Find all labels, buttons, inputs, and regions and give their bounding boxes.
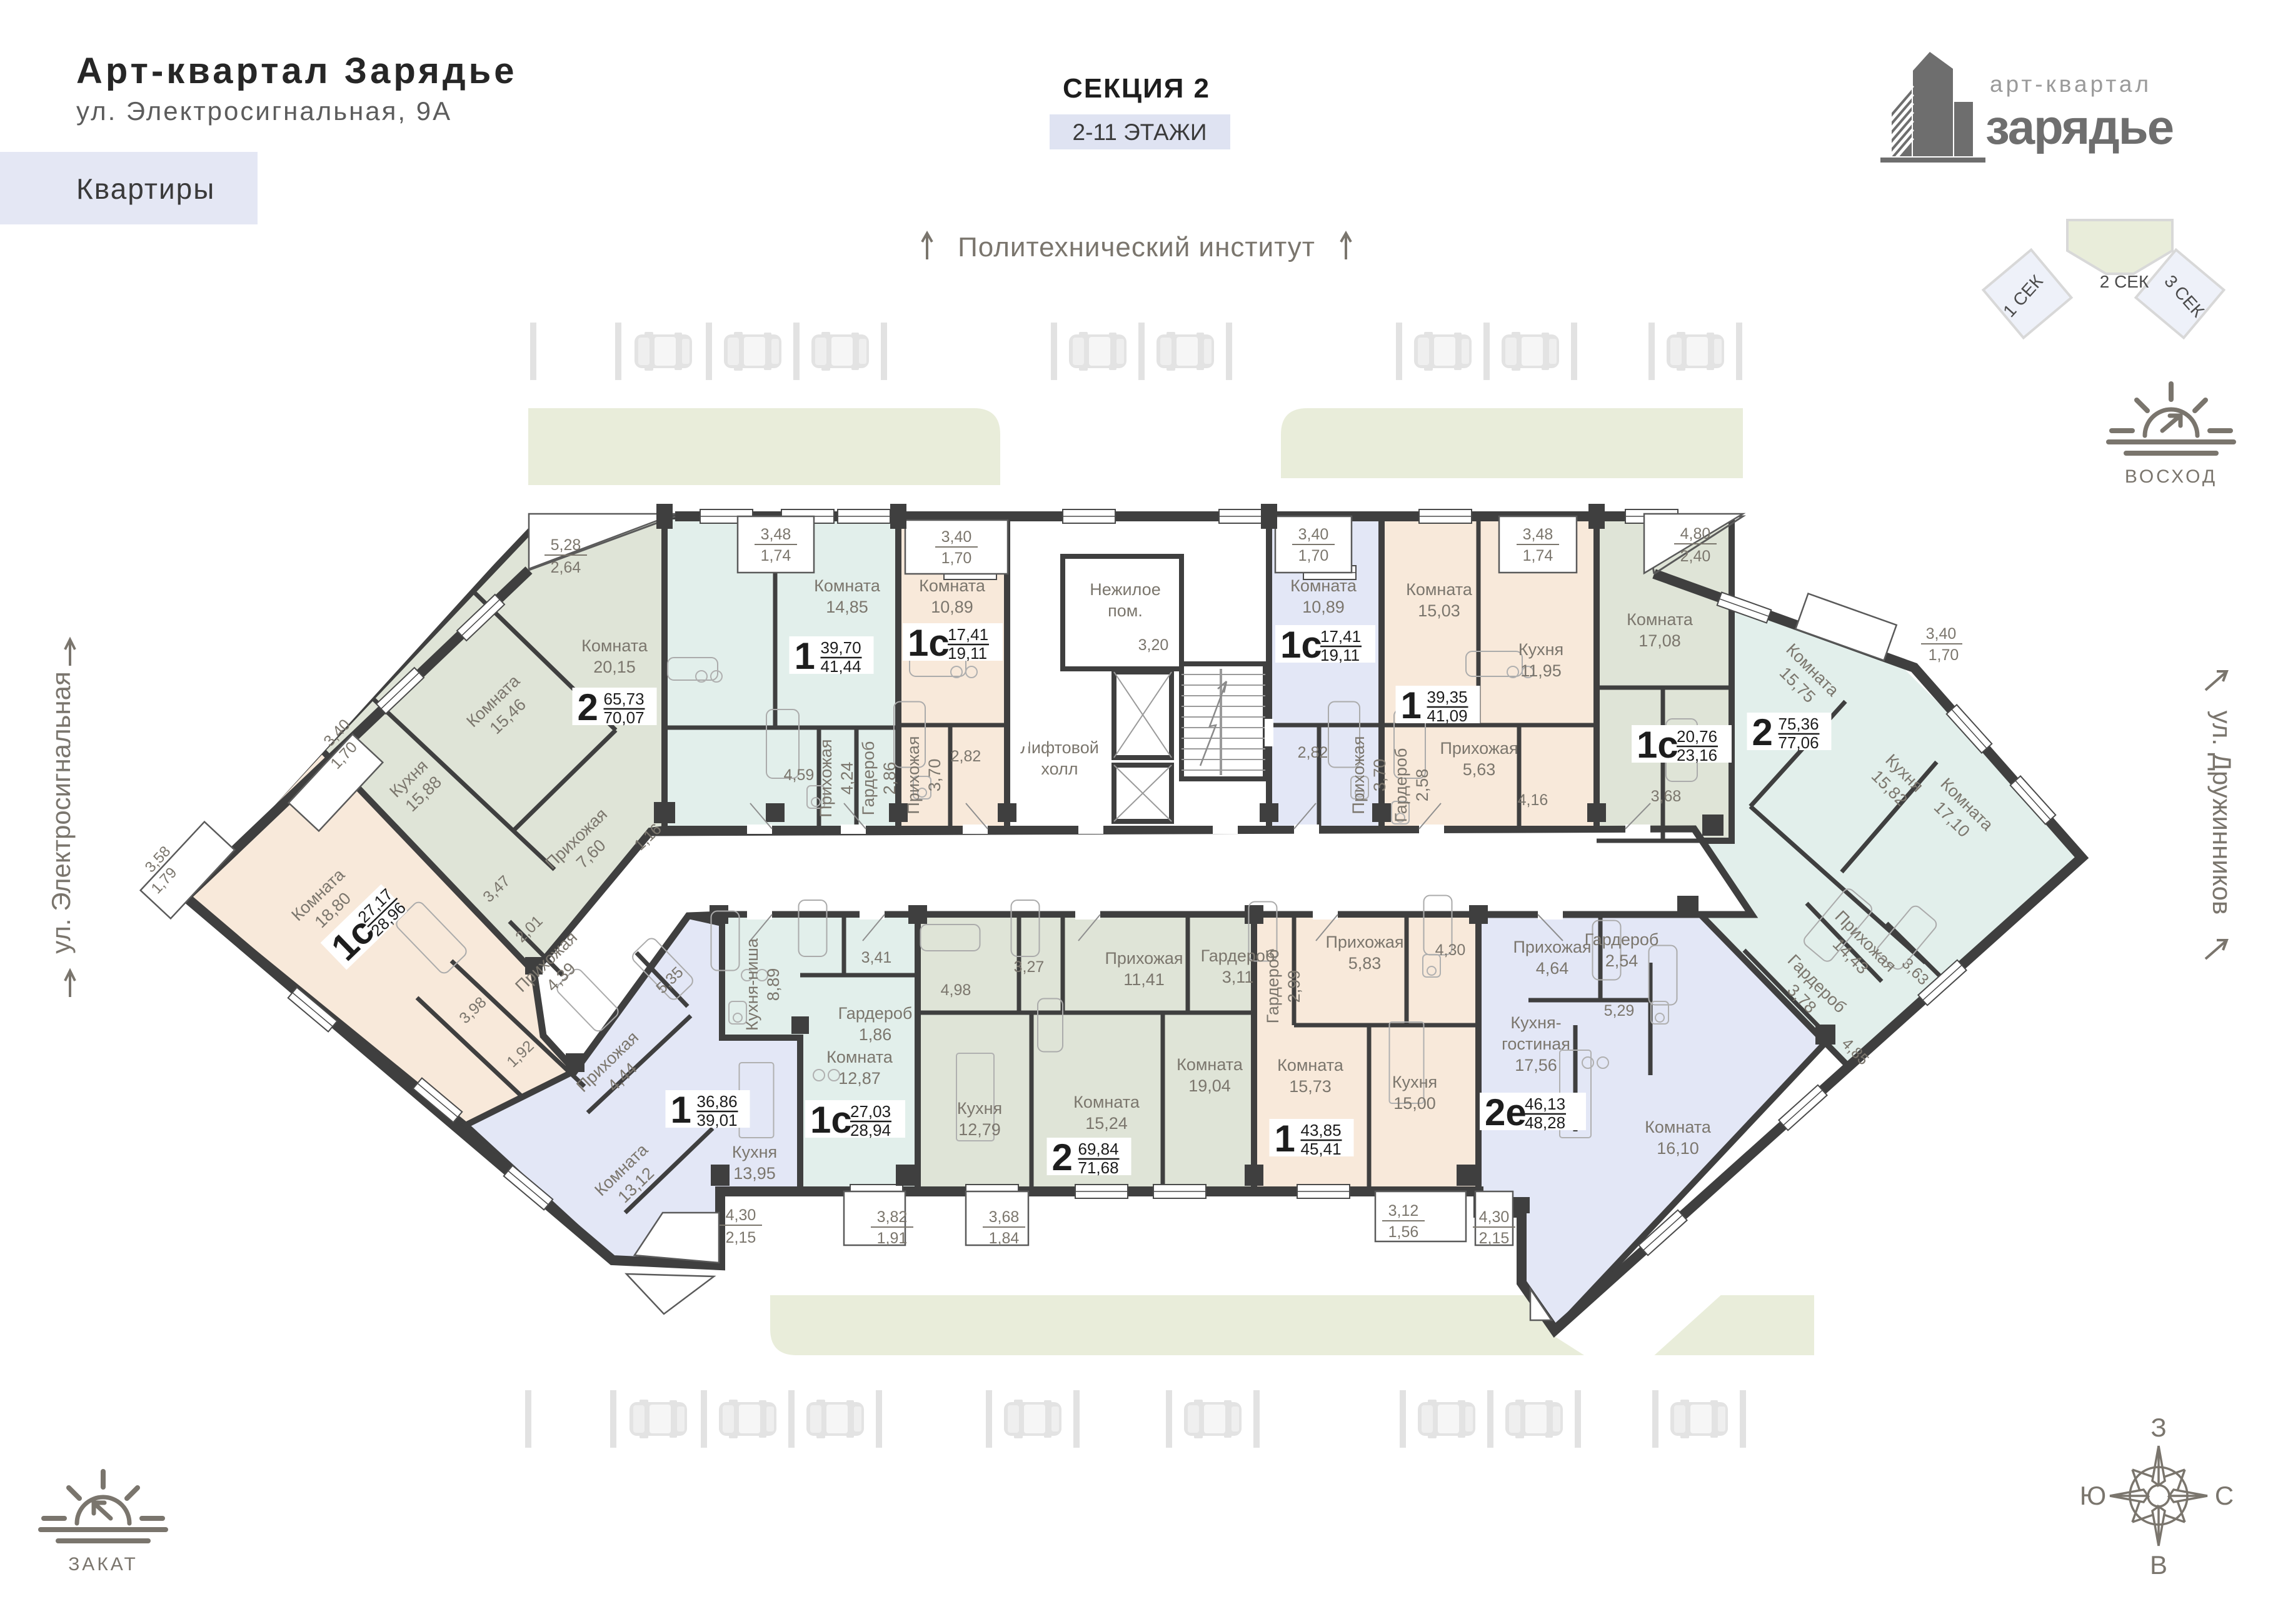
svg-text:1: 1 (671, 1089, 691, 1131)
svg-text:3,40: 3,40 (1926, 625, 1957, 643)
svg-text:5,29: 5,29 (1604, 1002, 1635, 1020)
svg-text:гостиная: гостиная (1502, 1035, 1570, 1053)
svg-text:Комната: Комната (1290, 576, 1357, 595)
svg-text:71,68: 71,68 (1078, 1158, 1119, 1177)
svg-text:зарядье: зарядье (1985, 99, 2173, 154)
svg-text:1с: 1с (1637, 724, 1678, 766)
svg-text:4,64: 4,64 (1536, 959, 1569, 978)
svg-text:3,82: 3,82 (877, 1208, 908, 1226)
svg-text:Комната: Комната (1645, 1118, 1712, 1136)
svg-text:1,74: 1,74 (1523, 547, 1553, 564)
svg-text:43,85: 43,85 (1301, 1121, 1342, 1140)
svg-text:3,48: 3,48 (1523, 526, 1553, 543)
svg-text:2,15: 2,15 (726, 1229, 756, 1246)
svg-text:Кухня: Кухня (957, 1099, 1002, 1118)
svg-text:3,68: 3,68 (1651, 788, 1682, 805)
svg-text:1: 1 (1275, 1118, 1295, 1160)
svg-text:14,85: 14,85 (826, 598, 868, 616)
svg-text:Прихожая: Прихожая (1440, 739, 1518, 758)
svg-text:3,70: 3,70 (1370, 759, 1389, 792)
svg-text:4,98: 4,98 (941, 981, 971, 999)
svg-text:15,73: 15,73 (1289, 1077, 1332, 1096)
svg-text:Прихожая: Прихожая (1105, 949, 1183, 968)
svg-text:19,11: 19,11 (948, 644, 987, 663)
svg-text:2,86: 2,86 (880, 762, 899, 795)
svg-text:4,59: 4,59 (784, 766, 815, 784)
svg-text:ул. Электросигнальная, 9А: ул. Электросигнальная, 9А (76, 96, 452, 126)
svg-text:28,94: 28,94 (850, 1121, 891, 1140)
svg-text:СЕКЦИЯ 2: СЕКЦИЯ 2 (1063, 73, 1210, 104)
svg-text:1,84: 1,84 (989, 1230, 1020, 1247)
svg-text:Комната: Комната (826, 1048, 893, 1066)
svg-text:2: 2 (578, 686, 598, 728)
svg-text:12,79: 12,79 (958, 1120, 1001, 1139)
svg-text:1,56: 1,56 (1388, 1223, 1419, 1241)
svg-text:5,63: 5,63 (1463, 760, 1496, 779)
svg-text:2,64: 2,64 (551, 559, 581, 576)
svg-text:Квартиры: Квартиры (76, 173, 215, 205)
svg-text:Кухня: Кухня (1392, 1073, 1437, 1091)
svg-text:8,89: 8,89 (764, 968, 783, 1001)
svg-text:2 СЕК: 2 СЕК (2100, 272, 2149, 291)
svg-text:Комната: Комната (1277, 1056, 1344, 1075)
svg-text:4,30: 4,30 (726, 1206, 756, 1224)
svg-text:17,08: 17,08 (1638, 631, 1681, 650)
svg-text:36,86: 36,86 (697, 1092, 738, 1111)
svg-text:23,16: 23,16 (1677, 746, 1717, 764)
svg-text:41,44: 41,44 (821, 657, 861, 676)
svg-text:2,40: 2,40 (1680, 548, 1711, 565)
svg-text:2: 2 (1052, 1136, 1073, 1178)
svg-text:19,04: 19,04 (1188, 1076, 1231, 1095)
svg-text:арт-квартал: арт-квартал (1990, 71, 2152, 97)
svg-text:Прихожая: Прихожая (1513, 938, 1591, 956)
svg-text:холл: холл (1041, 759, 1078, 778)
svg-text:2е: 2е (1485, 1091, 1527, 1133)
svg-text:2,82: 2,82 (951, 748, 981, 765)
svg-text:Комната: Комната (1073, 1093, 1140, 1111)
svg-text:пом.: пом. (1108, 601, 1143, 620)
svg-text:4,16: 4,16 (1518, 791, 1548, 809)
svg-text:20,15: 20,15 (593, 658, 636, 676)
svg-text:Прихожая: Прихожая (816, 739, 835, 817)
svg-text:ВОСХОД: ВОСХОД (2125, 466, 2217, 487)
svg-text:11,95: 11,95 (1520, 661, 1562, 680)
svg-text:13,95: 13,95 (733, 1164, 776, 1183)
svg-text:С: С (2215, 1481, 2234, 1510)
svg-text:Прихожая: Прихожая (904, 736, 923, 814)
svg-text:45,41: 45,41 (1301, 1140, 1342, 1158)
svg-text:41,09: 41,09 (1427, 706, 1468, 725)
svg-text:3,20: 3,20 (1138, 636, 1169, 654)
svg-text:10,89: 10,89 (931, 598, 973, 616)
svg-text:4,30: 4,30 (1435, 941, 1466, 959)
svg-text:Кухня-: Кухня- (1510, 1013, 1561, 1032)
svg-text:5,28: 5,28 (551, 536, 581, 554)
svg-text:75,36: 75,36 (1779, 714, 1819, 733)
svg-text:2,82: 2,82 (1298, 744, 1328, 761)
svg-text:Арт-квартал Зарядье: Арт-квартал Зарядье (76, 51, 518, 91)
svg-text:2,54: 2,54 (1605, 951, 1638, 970)
svg-text:3,70: 3,70 (925, 759, 944, 792)
svg-text:77,06: 77,06 (1779, 733, 1819, 752)
svg-text:Прихожая: Прихожая (1325, 933, 1403, 951)
svg-text:3,68: 3,68 (989, 1208, 1020, 1226)
svg-text:4,24: 4,24 (838, 762, 856, 795)
svg-text:Комната: Комната (1627, 610, 1693, 629)
svg-text:Кухня: Кухня (1518, 640, 1563, 659)
svg-text:Комната: Комната (814, 576, 881, 595)
svg-text:1,70: 1,70 (941, 549, 972, 567)
svg-text:11,41: 11,41 (1123, 970, 1165, 989)
svg-text:ул. Электросигнальная: ул. Электросигнальная (46, 671, 76, 953)
svg-text:Прихожая: Прихожая (1349, 736, 1368, 814)
svg-text:10,89: 10,89 (1302, 598, 1345, 616)
svg-text:1,70: 1,70 (1929, 646, 1959, 664)
svg-text:1: 1 (1401, 684, 1422, 726)
svg-text:Гардероб: Гардероб (1392, 748, 1410, 823)
svg-text:3,40: 3,40 (941, 528, 972, 546)
svg-text:27,03: 27,03 (850, 1102, 891, 1121)
svg-text:2: 2 (1752, 711, 1773, 753)
svg-text:ЗАКАТ: ЗАКАТ (68, 1554, 138, 1575)
svg-text:65,73: 65,73 (604, 689, 645, 708)
svg-text:3,11: 3,11 (1222, 968, 1254, 986)
svg-text:39,01: 39,01 (697, 1111, 738, 1130)
svg-text:15,00: 15,00 (1393, 1094, 1436, 1113)
svg-text:Ю: Ю (2080, 1481, 2106, 1510)
svg-text:2-11 ЭТАЖИ: 2-11 ЭТАЖИ (1073, 119, 1207, 145)
svg-text:1: 1 (795, 635, 815, 677)
svg-text:2,99: 2,99 (1285, 970, 1303, 1003)
svg-text:16,10: 16,10 (1657, 1139, 1699, 1158)
svg-text:Лифтовой: Лифтовой (1020, 738, 1099, 757)
svg-text:3,27: 3,27 (1014, 958, 1045, 976)
svg-text:17,41: 17,41 (948, 625, 988, 644)
svg-text:Гардероб: Гардероб (859, 741, 878, 816)
svg-text:70,07: 70,07 (604, 708, 645, 727)
svg-text:В: В (2150, 1550, 2167, 1580)
svg-text:З: З (2150, 1413, 2166, 1442)
svg-text:19,11: 19,11 (1320, 646, 1360, 664)
svg-text:1с: 1с (1280, 624, 1322, 666)
svg-text:1с: 1с (908, 622, 950, 664)
svg-text:39,35: 39,35 (1427, 688, 1468, 706)
svg-text:2,58: 2,58 (1413, 769, 1432, 802)
svg-text:15,03: 15,03 (1418, 601, 1460, 620)
svg-text:17,56: 17,56 (1515, 1056, 1557, 1075)
svg-text:17,41: 17,41 (1320, 627, 1361, 646)
svg-text:1,91: 1,91 (877, 1230, 908, 1247)
svg-text:Кухня: Кухня (732, 1143, 777, 1161)
svg-text:ул. Дружинников: ул. Дружинников (2207, 711, 2237, 915)
svg-text:3,40: 3,40 (1298, 526, 1329, 543)
svg-text:Комната: Комната (919, 576, 986, 595)
svg-text:Гардероб: Гардероб (838, 1004, 913, 1023)
svg-text:5,83: 5,83 (1348, 954, 1382, 973)
svg-text:1,70: 1,70 (1298, 547, 1329, 564)
svg-text:Гардероб: Гардероб (1263, 950, 1282, 1024)
svg-text:69,84: 69,84 (1078, 1140, 1119, 1158)
svg-text:3,48: 3,48 (761, 526, 791, 543)
svg-text:46,13: 46,13 (1525, 1095, 1565, 1113)
svg-text:Кухня-ниша: Кухня-ниша (743, 938, 761, 1031)
svg-text:4,30: 4,30 (1479, 1208, 1510, 1226)
svg-text:Политехнический институт: Политехнический институт (958, 232, 1315, 263)
svg-text:Комната: Комната (1406, 580, 1473, 599)
svg-text:3,12: 3,12 (1388, 1202, 1419, 1220)
svg-text:Комната: Комната (1177, 1055, 1243, 1074)
svg-text:15,24: 15,24 (1085, 1114, 1128, 1133)
svg-text:1с: 1с (810, 1099, 852, 1141)
svg-text:2,15: 2,15 (1479, 1230, 1510, 1247)
svg-text:1,86: 1,86 (859, 1025, 892, 1044)
svg-text:Нежилое: Нежилое (1090, 580, 1160, 599)
svg-text:4,80: 4,80 (1680, 525, 1711, 543)
svg-text:48,28: 48,28 (1525, 1113, 1565, 1132)
svg-text:Гардероб: Гардероб (1585, 930, 1659, 949)
svg-text:12,87: 12,87 (838, 1069, 881, 1088)
svg-text:39,70: 39,70 (821, 638, 861, 657)
svg-text:3,41: 3,41 (861, 949, 892, 966)
svg-text:1,74: 1,74 (761, 547, 791, 564)
svg-text:20,76: 20,76 (1677, 727, 1717, 746)
svg-text:Комната: Комната (581, 636, 648, 655)
